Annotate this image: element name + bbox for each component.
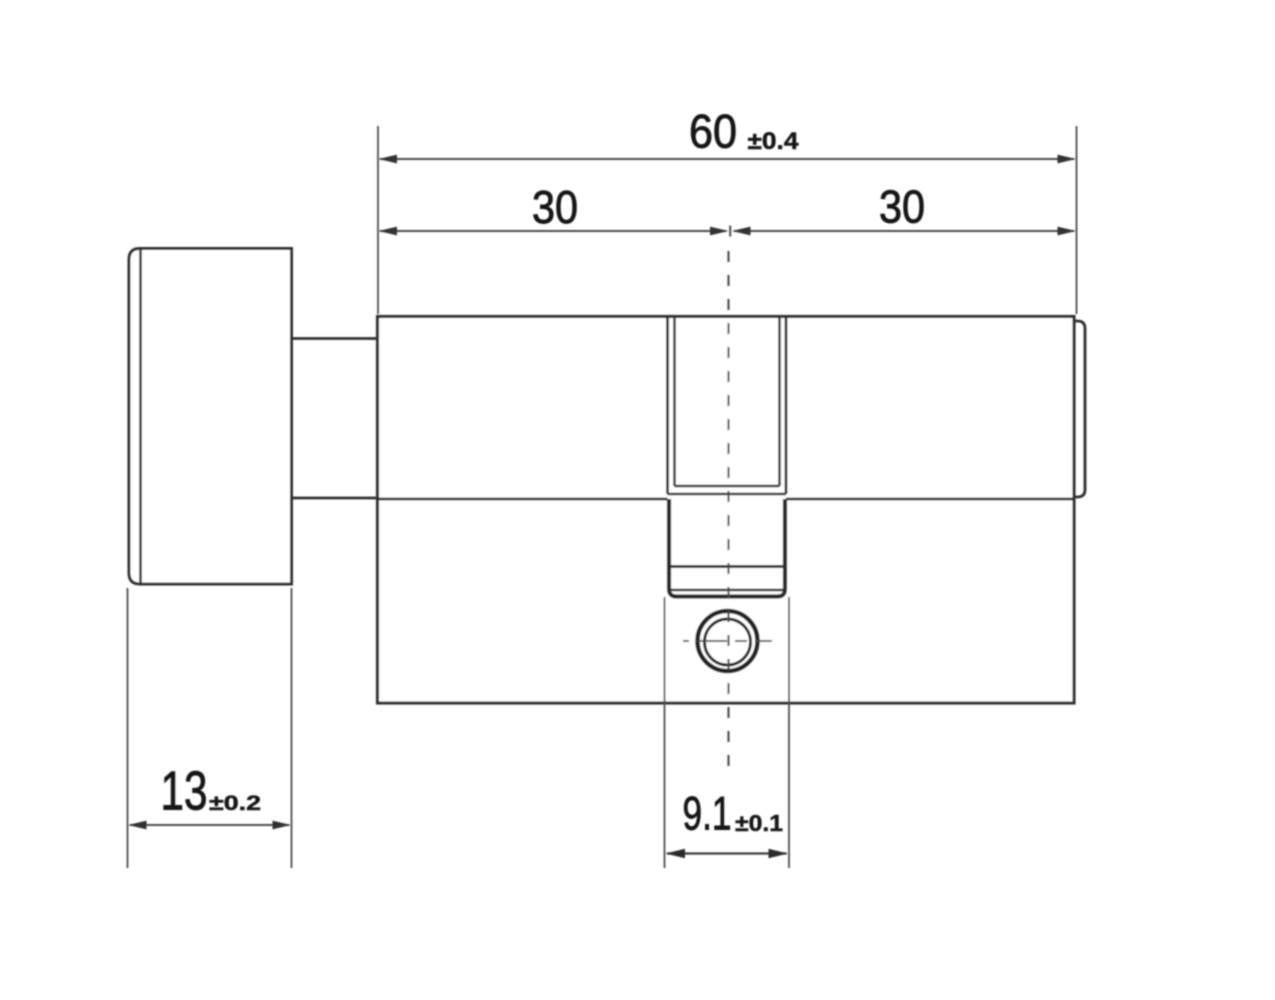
svg-text:30: 30: [879, 181, 925, 233]
svg-text:13: 13: [161, 760, 208, 822]
svg-text:30: 30: [532, 181, 578, 233]
svg-text:60: 60: [689, 105, 737, 158]
svg-text:9.1: 9.1: [683, 787, 732, 840]
svg-text:±0.4: ±0.4: [748, 128, 800, 155]
svg-text:±0.2: ±0.2: [209, 792, 261, 815]
svg-text:±0.1: ±0.1: [735, 810, 783, 836]
